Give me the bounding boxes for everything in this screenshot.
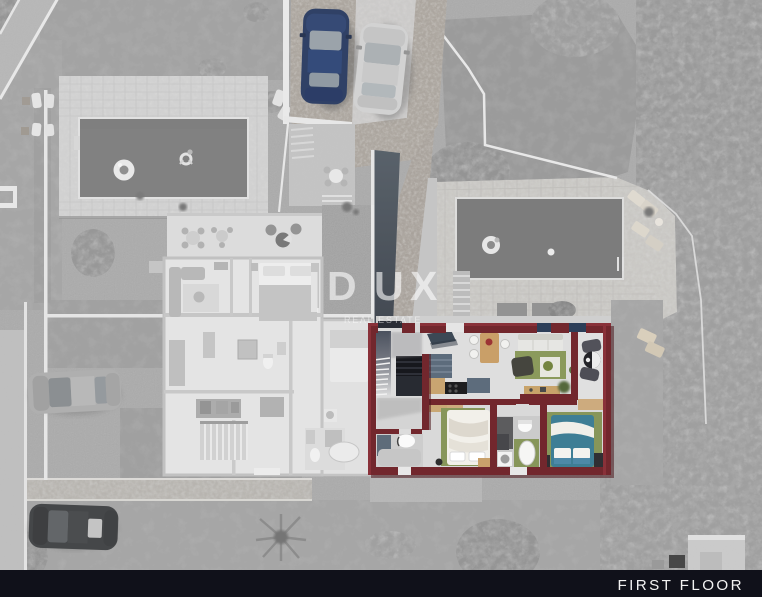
svg-text:REAL ESTATE: REAL ESTATE <box>344 315 422 325</box>
svg-text:FIRST FLOOR: FIRST FLOOR <box>617 577 744 594</box>
svg-text:X: X <box>410 263 437 309</box>
svg-text:U: U <box>374 263 404 309</box>
svg-text:D: D <box>327 263 357 309</box>
